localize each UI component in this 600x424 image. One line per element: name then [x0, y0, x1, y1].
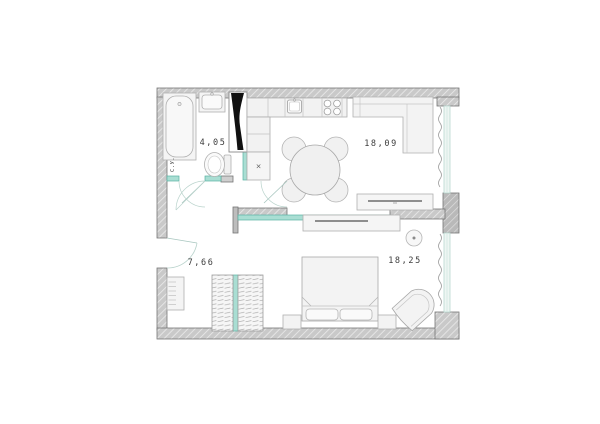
wall-corner-bottom-right — [435, 312, 459, 339]
dining-table — [290, 145, 340, 195]
label-bathroom-name: С.У. — [170, 157, 176, 172]
kitchen-counter-side — [247, 117, 270, 152]
door-swings — [167, 181, 287, 268]
glass-wardrobe-divider — [233, 275, 238, 331]
toilet — [205, 153, 232, 177]
pillow — [340, 309, 372, 320]
bedroom-furniture — [283, 215, 440, 332]
armchair — [391, 283, 440, 331]
label-hallway-area: 7,66 — [188, 258, 215, 268]
dining-set — [282, 137, 348, 202]
curtain-bedroom — [439, 234, 442, 306]
tv-console-living — [357, 194, 433, 210]
washing-machine: × — [247, 152, 270, 180]
partition-end-post — [233, 207, 238, 233]
bathroom-door — [176, 181, 205, 210]
shoe-cabinet — [167, 277, 184, 310]
floor-lamp — [406, 230, 422, 246]
washbasin — [199, 92, 225, 112]
wall-corner-top-right — [437, 97, 459, 106]
bathroom-wall-stub — [221, 176, 233, 182]
hallway-furniture — [167, 275, 263, 331]
label-bedroom-area: 18,25 — [388, 256, 422, 266]
ventilation-shaft — [229, 92, 247, 152]
double-bed — [302, 257, 378, 321]
wall-left-lower — [157, 268, 167, 330]
glass-bathroom-door-left — [167, 176, 179, 181]
bathtub-drain — [178, 102, 181, 105]
floor-plan-drawing: × — [0, 0, 600, 424]
bathtub — [163, 93, 196, 160]
label-living-area: 18,09 — [364, 139, 398, 149]
label-bathroom-area: 4,05 — [200, 138, 227, 148]
glass-strip-kitchen — [243, 152, 247, 180]
curtain-living — [439, 107, 442, 187]
washing-machine-symbol: × — [256, 163, 262, 171]
nightstand-left — [283, 315, 301, 329]
floor-plan-canvas: × — [0, 0, 600, 424]
pillow — [306, 309, 338, 320]
dresser-bedroom — [303, 215, 400, 231]
kitchen-sink — [288, 99, 302, 113]
nightstand-right — [378, 315, 396, 329]
washbasin-faucet — [211, 93, 214, 96]
